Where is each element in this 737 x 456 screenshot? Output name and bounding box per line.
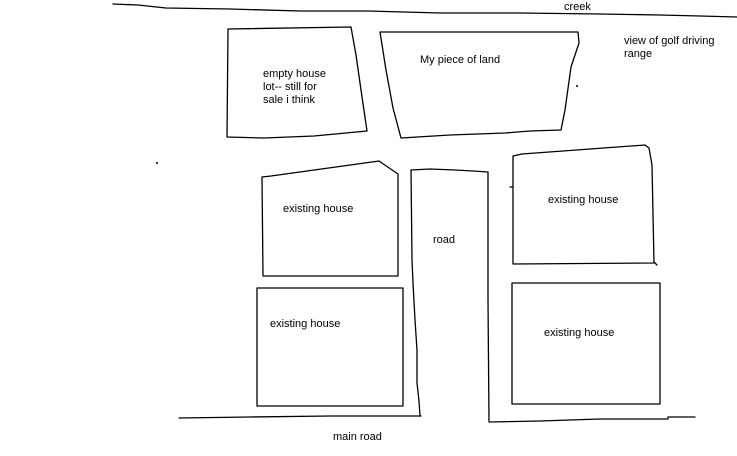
house-bottom-right-outline	[512, 283, 660, 404]
stray-dot-left	[156, 162, 158, 164]
golf-view-label: view of golf driving range	[624, 35, 715, 61]
house-top-left-outline	[262, 161, 398, 276]
house-top-left-label: existing house	[283, 203, 353, 216]
sketch-drawing	[0, 0, 737, 456]
main-road-right-line	[489, 417, 695, 422]
stray-dot-right	[576, 85, 578, 87]
house-bottom-right-label: existing house	[544, 327, 614, 340]
road-label: road	[433, 234, 455, 247]
my-land-label: My piece of land	[420, 54, 500, 67]
house-top-right-label: existing house	[548, 194, 618, 207]
house-top-right-corner-tick	[654, 262, 657, 265]
road-top-and-right-edge	[411, 169, 489, 421]
main-road-left-line	[179, 416, 421, 418]
creek-label: creek	[564, 1, 591, 14]
site-sketch-canvas: creek view of golf driving range empty h…	[0, 0, 737, 456]
empty-lot-label: empty house lot-- still for sale i think	[263, 68, 326, 107]
road-left-edge	[411, 170, 420, 416]
house-bottom-left-outline	[257, 288, 403, 406]
main-road-label: main road	[333, 431, 382, 444]
creek-line	[113, 4, 737, 17]
house-bottom-left-label: existing house	[270, 318, 340, 331]
my-land-outline	[380, 32, 579, 138]
